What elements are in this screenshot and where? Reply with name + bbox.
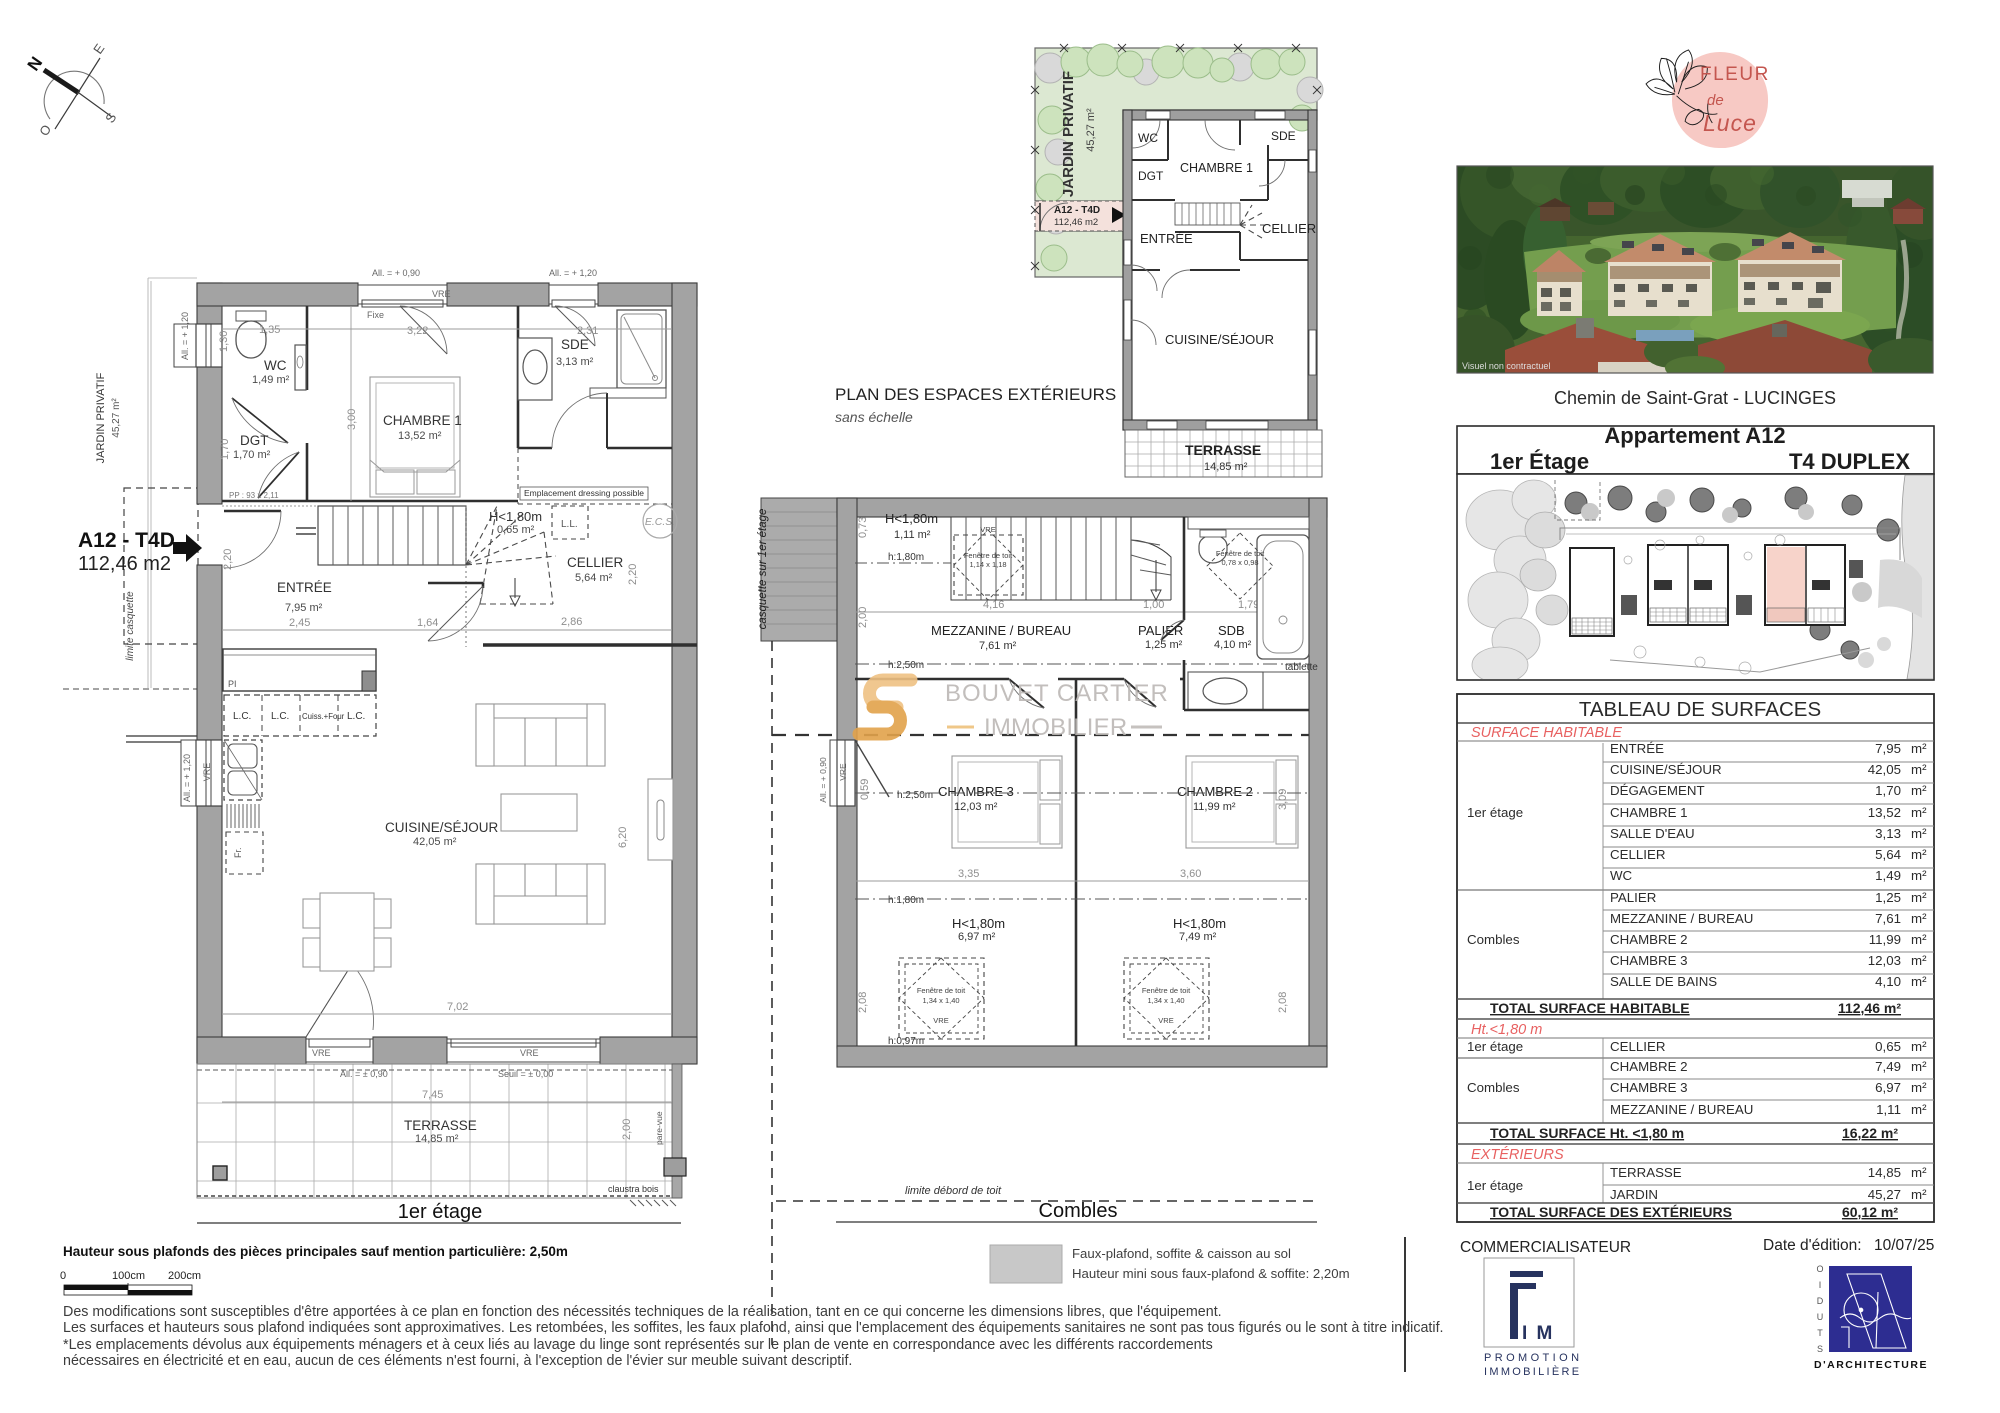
svg-text:3,09: 3,09 [1277, 789, 1289, 810]
svg-text:CHAMBRE 3: CHAMBRE 3 [938, 784, 1014, 799]
svg-text:2,20: 2,20 [627, 564, 639, 585]
svg-text:7,49: 7,49 [1875, 1059, 1901, 1074]
svg-text:0,65 m²: 0,65 m² [497, 524, 535, 536]
svg-text:DÉGAGEMENT: DÉGAGEMENT [1610, 783, 1705, 798]
svg-text:m²: m² [1911, 1187, 1927, 1202]
svg-text:16,22 m²: 16,22 m² [1842, 1125, 1898, 1141]
svg-text:5,64: 5,64 [1875, 847, 1901, 862]
svg-text:ENTRÉE: ENTRÉE [1140, 231, 1193, 246]
svg-text:13,52 m²: 13,52 m² [398, 430, 442, 442]
svg-text:2,86: 2,86 [561, 616, 582, 628]
svg-text:DGT: DGT [1138, 169, 1164, 183]
svg-text:m²: m² [1911, 762, 1927, 777]
svg-text:1,70: 1,70 [219, 439, 231, 460]
svg-text:0: 0 [60, 1270, 66, 1282]
svg-text:VRE: VRE [980, 525, 995, 534]
svg-text:3,00: 3,00 [346, 409, 358, 430]
svg-text:IMMOBILIER: IMMOBILIER [984, 714, 1127, 741]
svg-text:S: S [1817, 1344, 1823, 1354]
svg-text:VRE: VRE [520, 1048, 539, 1058]
svg-text:I: I [1819, 1280, 1822, 1290]
svg-text:EXTÉRIEURS: EXTÉRIEURS [1471, 1146, 1564, 1163]
svg-text:WC: WC [1138, 131, 1158, 145]
svg-text:TERRASSE: TERRASSE [404, 1118, 477, 1133]
svg-text:H<1,80m: H<1,80m [952, 916, 1005, 931]
svg-text:m²: m² [1911, 826, 1927, 841]
svg-text:JARDIN PRIVATIF: JARDIN PRIVATIF [95, 372, 107, 463]
svg-text:CHAMBRE 1: CHAMBRE 1 [1610, 805, 1688, 820]
svg-text:m²: m² [1911, 805, 1927, 820]
svg-text:Les surfaces et hauteurs sous: Les surfaces et hauteurs sous plafond in… [63, 1320, 1444, 1336]
svg-text:VRE: VRE [202, 763, 212, 782]
svg-text:m²: m² [1911, 868, 1927, 883]
svg-text:TOTAL SURFACE Ht. <1,80 m: TOTAL SURFACE Ht. <1,80 m [1490, 1125, 1684, 1141]
svg-text:FLEUR: FLEUR [1700, 64, 1770, 85]
svg-text:Fenêtre de toit: Fenêtre de toit [917, 986, 966, 995]
svg-text:1,70: 1,70 [1875, 783, 1901, 798]
svg-text:limite casquette: limite casquette [125, 591, 136, 661]
svg-text:D'ARCHITECTURE: D'ARCHITECTURE [1814, 1359, 1928, 1371]
svg-text:45,27: 45,27 [1868, 1187, 1901, 1202]
svg-text:All. = ± 0,90: All. = ± 0,90 [340, 1069, 388, 1079]
svg-text:m²: m² [1911, 741, 1927, 756]
svg-text:1,79: 1,79 [1238, 599, 1259, 611]
svg-text:COMMERCIALISATEUR: COMMERCIALISATEUR [1460, 1239, 1631, 1256]
svg-text:1,11 m²: 1,11 m² [894, 529, 931, 541]
svg-text:All. = + 1,20: All. = + 1,20 [182, 754, 192, 802]
svg-text:Emplacement dressing possible: Emplacement dressing possible [524, 488, 644, 498]
svg-text:1,25 m²: 1,25 m² [1145, 639, 1183, 651]
svg-text:SDE: SDE [1271, 129, 1296, 143]
svg-text:PROMOTION: PROMOTION [1484, 1352, 1582, 1364]
svg-text:CUISINE/SÉJOUR: CUISINE/SÉJOUR [1165, 332, 1274, 347]
svg-text:SURFACE HABITABLE: SURFACE HABITABLE [1471, 725, 1622, 741]
svg-text:ENTRÉE: ENTRÉE [1610, 741, 1664, 756]
svg-text:S: S [102, 110, 119, 126]
svg-text:5,64 m²: 5,64 m² [575, 572, 613, 584]
svg-text:VRE: VRE [312, 1048, 331, 1058]
svg-text:N: N [24, 53, 47, 74]
svg-text:42,05 m²: 42,05 m² [413, 836, 457, 848]
svg-text:Visuel non contractuel: Visuel non contractuel [1462, 361, 1550, 371]
svg-text:h:1,80m: h:1,80m [888, 895, 924, 906]
svg-text:A12 - T4D: A12 - T4D [78, 529, 175, 552]
svg-text:CELLIER: CELLIER [1262, 221, 1316, 236]
svg-text:1,34 x 1,40: 1,34 x 1,40 [922, 996, 959, 1005]
svg-text:Hauteur mini sous faux-plafond: Hauteur mini sous faux-plafond & soffite… [1072, 1266, 1350, 1281]
svg-text:CHAMBRE 3: CHAMBRE 3 [1610, 953, 1688, 968]
svg-text:0,78 x 0,98: 0,78 x 0,98 [1221, 558, 1258, 567]
svg-text:h:2,50m: h:2,50m [897, 790, 933, 801]
svg-text:H<1,80m: H<1,80m [1173, 916, 1226, 931]
svg-text:6,97: 6,97 [1875, 1080, 1901, 1095]
svg-text:nécessaires en électricité et: nécessaires en électricité et en eau, au… [63, 1353, 852, 1369]
svg-text:Des modifications sont suscept: Des modifications sont susceptibles d'êt… [63, 1304, 1222, 1320]
svg-text:200cm: 200cm [168, 1270, 201, 1282]
svg-text:*Les emplacements dévolus aux: *Les emplacements dévolus aux équipement… [63, 1337, 1213, 1353]
svg-text:casquette sur 1er étage: casquette sur 1er étage [757, 509, 769, 630]
svg-text:Hauteur sous plafonds des pièc: Hauteur sous plafonds des pièces princip… [63, 1244, 568, 1259]
svg-text:60,12 m²: 60,12 m² [1842, 1204, 1898, 1220]
svg-text:L.C.: L.C. [271, 711, 289, 722]
svg-text:Ht.<1,80 m: Ht.<1,80 m [1471, 1022, 1542, 1038]
svg-text:11,99: 11,99 [1869, 932, 1901, 947]
svg-text:D: D [1817, 1296, 1824, 1306]
svg-text:m²: m² [1911, 890, 1927, 905]
svg-text:CELLIER: CELLIER [1610, 1039, 1665, 1054]
svg-text:m²: m² [1911, 1059, 1927, 1074]
svg-text:TOTAL SURFACE DES EXTÉRIEURS: TOTAL SURFACE DES EXTÉRIEURS [1490, 1204, 1732, 1220]
svg-text:Luce: Luce [1703, 110, 1757, 136]
svg-text:WC: WC [1610, 868, 1633, 883]
svg-text:CHAMBRE 1: CHAMBRE 1 [1180, 161, 1253, 175]
svg-text:PALIER: PALIER [1610, 890, 1656, 905]
svg-text:m²: m² [1911, 1039, 1927, 1054]
svg-text:14,85 m²: 14,85 m² [415, 1133, 459, 1145]
svg-text:m²: m² [1911, 847, 1927, 862]
svg-text:12,03: 12,03 [1868, 953, 1901, 968]
svg-text:h:1,80m: h:1,80m [888, 552, 924, 563]
svg-text:m²: m² [1911, 932, 1927, 947]
svg-text:CHAMBRE 2: CHAMBRE 2 [1177, 784, 1253, 799]
svg-text:Fenêtre de toit: Fenêtre de toit [1216, 549, 1265, 558]
svg-text:3,13 m²: 3,13 m² [556, 356, 594, 368]
svg-text:de: de [1707, 92, 1724, 109]
svg-text:4,10: 4,10 [1875, 974, 1901, 989]
svg-text:BOUVET CARTIER: BOUVET CARTIER [945, 680, 1169, 707]
svg-text:Combles: Combles [1039, 1200, 1118, 1222]
svg-text:4,10 m²: 4,10 m² [1214, 639, 1252, 651]
svg-text:IMMOBILIÈRE: IMMOBILIÈRE [1484, 1365, 1581, 1378]
svg-text:L.L.: L.L. [561, 519, 578, 530]
svg-text:pare-vue: pare-vue [654, 1111, 664, 1145]
svg-text:1,34 x 1,40: 1,34 x 1,40 [1147, 996, 1184, 1005]
svg-text:L.C.: L.C. [347, 711, 365, 722]
svg-text:1er étage: 1er étage [1467, 1178, 1523, 1193]
svg-text:1er étage: 1er étage [1467, 805, 1523, 820]
svg-text:E: E [90, 41, 107, 57]
svg-text:claustra bois: claustra bois [608, 1184, 659, 1194]
svg-text:PI: PI [228, 679, 237, 689]
svg-text:Fenêtre de toit: Fenêtre de toit [964, 551, 1013, 560]
svg-text:ENTRÉE: ENTRÉE [277, 580, 332, 595]
svg-text:6,97 m²: 6,97 m² [958, 931, 996, 943]
svg-text:m²: m² [1911, 953, 1927, 968]
svg-text:10/07/25: 10/07/25 [1874, 1237, 1934, 1254]
svg-text:WC: WC [264, 358, 287, 373]
svg-text:4,16: 4,16 [983, 599, 1004, 611]
svg-text:m²: m² [1911, 1080, 1927, 1095]
svg-text:Appartement A12: Appartement A12 [1604, 423, 1785, 448]
svg-text:2,08: 2,08 [1277, 992, 1289, 1013]
svg-text:11,99 m²: 11,99 m² [1193, 801, 1236, 813]
svg-text:VRE: VRE [432, 289, 451, 299]
svg-text:MEZZANINE / BUREAU: MEZZANINE / BUREAU [1610, 911, 1753, 926]
svg-text:45,27 m²: 45,27 m² [1085, 108, 1097, 152]
svg-text:SALLE D'EAU: SALLE D'EAU [1610, 826, 1695, 841]
svg-text:L.C.: L.C. [233, 711, 251, 722]
svg-text:tablette: tablette [1285, 662, 1318, 673]
svg-text:MEZZANINE / BUREAU: MEZZANINE / BUREAU [931, 623, 1071, 638]
svg-text:Fixe: Fixe [367, 310, 384, 320]
svg-text:1,64: 1,64 [417, 617, 438, 629]
svg-text:45,27 m²: 45,27 m² [111, 398, 122, 438]
svg-text:All. = + 1,20: All. = + 1,20 [549, 268, 597, 278]
svg-text:1,49: 1,49 [1875, 868, 1901, 883]
svg-text:DGT: DGT [240, 433, 269, 448]
svg-text:Fenêtre de toit: Fenêtre de toit [1142, 986, 1191, 995]
svg-text:CHAMBRE 2: CHAMBRE 2 [1610, 932, 1688, 947]
svg-text:2,00: 2,00 [857, 607, 869, 628]
svg-text:T: T [1817, 1328, 1823, 1338]
svg-text:H<1,80m: H<1,80m [489, 509, 542, 524]
svg-text:CUISINE/SÉJOUR: CUISINE/SÉJOUR [385, 820, 499, 835]
svg-text:Cuiss.+Four: Cuiss.+Four [302, 712, 345, 721]
svg-text:1,70 m²: 1,70 m² [233, 449, 271, 461]
svg-text:SALLE DE BAINS: SALLE DE BAINS [1610, 974, 1717, 989]
svg-text:Combles: Combles [1467, 932, 1520, 947]
svg-text:1,14 x 1,18: 1,14 x 1,18 [969, 560, 1006, 569]
svg-text:1,25: 1,25 [1875, 890, 1901, 905]
svg-text:Fr.: Fr. [233, 848, 243, 859]
svg-text:13,52: 13,52 [1868, 805, 1901, 820]
svg-text:2,00: 2,00 [621, 1119, 633, 1140]
svg-text:m²: m² [1911, 783, 1927, 798]
svg-text:0,73: 0,73 [857, 517, 869, 538]
svg-text:1,00: 1,00 [1143, 599, 1164, 611]
svg-text:3,13: 3,13 [1875, 826, 1901, 841]
svg-text:2,31: 2,31 [577, 325, 598, 337]
svg-text:TERRASSE: TERRASSE [1185, 442, 1261, 458]
svg-text:7,95: 7,95 [1875, 741, 1901, 756]
svg-text:14,85 m²: 14,85 m² [1204, 461, 1248, 473]
svg-text:2,08: 2,08 [857, 992, 869, 1013]
svg-text:1er étage: 1er étage [398, 1201, 483, 1223]
svg-text:100cm: 100cm [112, 1270, 145, 1282]
svg-text:2,20: 2,20 [222, 549, 234, 570]
svg-text:CUISINE/SÉJOUR: CUISINE/SÉJOUR [1610, 762, 1722, 777]
svg-text:A12 - T4D: A12 - T4D [1054, 205, 1100, 216]
svg-text:O: O [1816, 1264, 1823, 1274]
svg-text:7,61: 7,61 [1875, 911, 1901, 926]
svg-text:7,61 m²: 7,61 m² [979, 640, 1017, 652]
svg-text:SDE: SDE [561, 337, 589, 352]
svg-text:U: U [1817, 1312, 1824, 1322]
svg-text:42,05: 42,05 [1868, 762, 1901, 777]
svg-text:12,03 m²: 12,03 m² [954, 801, 998, 813]
svg-text:0,59: 0,59 [859, 779, 871, 800]
svg-text:TOTAL SURFACE HABITABLE: TOTAL SURFACE HABITABLE [1490, 1000, 1690, 1016]
svg-text:112,46 m2: 112,46 m2 [1054, 217, 1098, 228]
svg-text:H<1,80m: H<1,80m [885, 511, 938, 526]
svg-text:VRE: VRE [1158, 1016, 1173, 1025]
svg-text:All. = + 1,20: All. = + 1,20 [180, 312, 190, 360]
svg-text:7,95 m²: 7,95 m² [285, 602, 323, 614]
svg-text:sans échelle: sans échelle [835, 409, 913, 425]
svg-text:m²: m² [1911, 974, 1927, 989]
svg-text:Combles: Combles [1467, 1080, 1520, 1095]
svg-text:VRE: VRE [933, 1016, 948, 1025]
svg-text:14,85: 14,85 [1868, 1165, 1901, 1180]
svg-text:Faux-plafond, soffite & caisso: Faux-plafond, soffite & caisson au sol [1072, 1246, 1291, 1261]
svg-text:3,22: 3,22 [407, 325, 428, 337]
svg-text:1er Étage: 1er Étage [1490, 449, 1589, 474]
svg-text:CHAMBRE 3: CHAMBRE 3 [1610, 1080, 1688, 1095]
svg-text:limite débord de toit: limite débord de toit [905, 1185, 1002, 1197]
svg-text:m²: m² [1911, 911, 1927, 926]
svg-text:O: O [36, 122, 54, 139]
svg-text:CHAMBRE 2: CHAMBRE 2 [1610, 1059, 1688, 1074]
svg-text:PP : 93 x 2,11: PP : 93 x 2,11 [229, 491, 279, 500]
svg-text:All. = + 0,90: All. = + 0,90 [818, 757, 828, 803]
svg-text:JARDIN: JARDIN [1610, 1187, 1658, 1202]
svg-text:All. = + 0,90: All. = + 0,90 [372, 268, 420, 278]
svg-text:Chemin de Saint-Grat - LUCINGE: Chemin de Saint-Grat - LUCINGES [1554, 388, 1836, 408]
svg-text:CELLIER: CELLIER [1610, 847, 1665, 862]
svg-text:3,35: 3,35 [958, 868, 979, 880]
svg-text:MEZZANINE / BUREAU: MEZZANINE / BUREAU [1610, 1102, 1753, 1117]
svg-text:3,60: 3,60 [1180, 868, 1201, 880]
svg-text:7,45: 7,45 [422, 1089, 443, 1101]
svg-text:CELLIER: CELLIER [567, 555, 624, 570]
svg-text:1er étage: 1er étage [1467, 1039, 1523, 1054]
svg-text:TABLEAU DE SURFACES: TABLEAU DE SURFACES [1579, 698, 1821, 721]
svg-text:h:0,97m: h:0,97m [888, 1036, 924, 1047]
svg-text:SDB: SDB [1218, 623, 1245, 638]
svg-text:h:2,50m: h:2,50m [888, 660, 924, 671]
svg-text:1,35: 1,35 [259, 324, 280, 336]
svg-text:m²: m² [1911, 1165, 1927, 1180]
svg-text:PLAN DES ESPACES EXTÉRIEURS: PLAN DES ESPACES EXTÉRIEURS [835, 385, 1116, 404]
svg-text:T4 DUPLEX: T4 DUPLEX [1789, 449, 1910, 474]
svg-text:JARDIN PRIVATIF: JARDIN PRIVATIF [1060, 71, 1077, 197]
svg-text:VRE: VRE [838, 763, 848, 781]
svg-text:1,30: 1,30 [218, 331, 230, 352]
svg-text:Date d'édition:: Date d'édition: [1763, 1237, 1862, 1254]
svg-text:1,11: 1,11 [1876, 1102, 1901, 1117]
svg-text:7,49 m²: 7,49 m² [1179, 931, 1217, 943]
svg-text:I M: I M [1522, 1323, 1554, 1344]
svg-text:0,65: 0,65 [1875, 1039, 1901, 1054]
svg-text:m²: m² [1911, 1102, 1927, 1117]
svg-text:1,49 m²: 1,49 m² [252, 374, 290, 386]
svg-text:2,45: 2,45 [289, 617, 310, 629]
svg-text:E.C.S.: E.C.S. [645, 516, 675, 528]
svg-text:112,46 m2: 112,46 m2 [78, 553, 171, 575]
svg-text:TERRASSE: TERRASSE [1610, 1165, 1682, 1180]
svg-text:112,46 m²: 112,46 m² [1838, 1000, 1901, 1016]
svg-text:7,02: 7,02 [447, 1001, 468, 1013]
svg-text:CHAMBRE 1: CHAMBRE 1 [383, 413, 462, 428]
svg-text:6,20: 6,20 [617, 827, 629, 848]
